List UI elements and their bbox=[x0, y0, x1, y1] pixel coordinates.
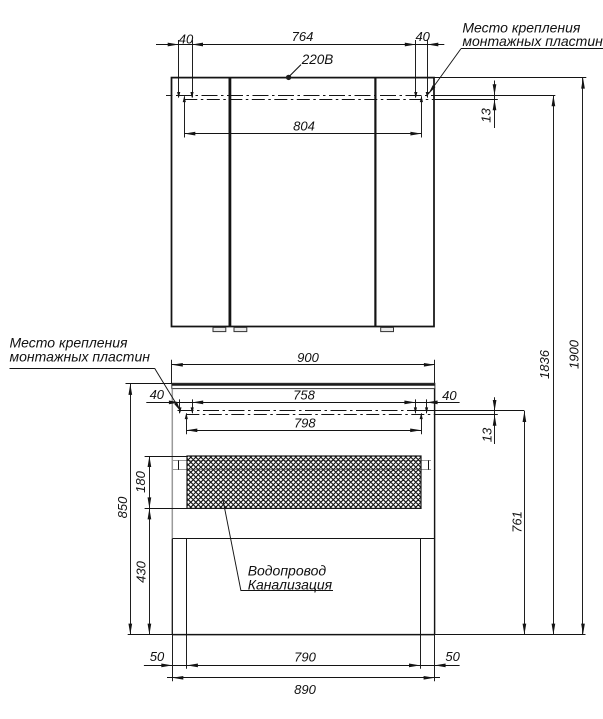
svg-text:850: 850 bbox=[115, 496, 130, 518]
svg-text:761: 761 bbox=[510, 511, 525, 533]
svg-text:890: 890 bbox=[294, 682, 316, 697]
svg-text:1836: 1836 bbox=[537, 349, 552, 379]
svg-text:180: 180 bbox=[133, 470, 148, 492]
svg-text:40: 40 bbox=[150, 387, 165, 402]
svg-text:монтажных пластин: монтажных пластин bbox=[10, 349, 151, 365]
svg-text:900: 900 bbox=[297, 350, 319, 365]
svg-text:758: 758 bbox=[293, 387, 315, 402]
svg-text:Канализация: Канализация bbox=[248, 577, 333, 593]
svg-text:13: 13 bbox=[479, 108, 494, 123]
svg-text:764: 764 bbox=[292, 29, 314, 44]
svg-text:50: 50 bbox=[445, 649, 460, 664]
svg-text:1900: 1900 bbox=[567, 339, 582, 369]
svg-text:монтажных пластин: монтажных пластин bbox=[462, 33, 603, 49]
svg-text:798: 798 bbox=[294, 416, 316, 431]
svg-text:40: 40 bbox=[415, 29, 430, 44]
svg-text:804: 804 bbox=[293, 118, 315, 133]
svg-text:13: 13 bbox=[480, 427, 495, 442]
svg-text:50: 50 bbox=[150, 649, 165, 664]
svg-text:40: 40 bbox=[179, 31, 194, 46]
svg-text:790: 790 bbox=[294, 650, 316, 665]
svg-text:220В: 220В bbox=[301, 52, 334, 67]
svg-text:40: 40 bbox=[442, 388, 457, 403]
svg-text:430: 430 bbox=[134, 560, 149, 582]
